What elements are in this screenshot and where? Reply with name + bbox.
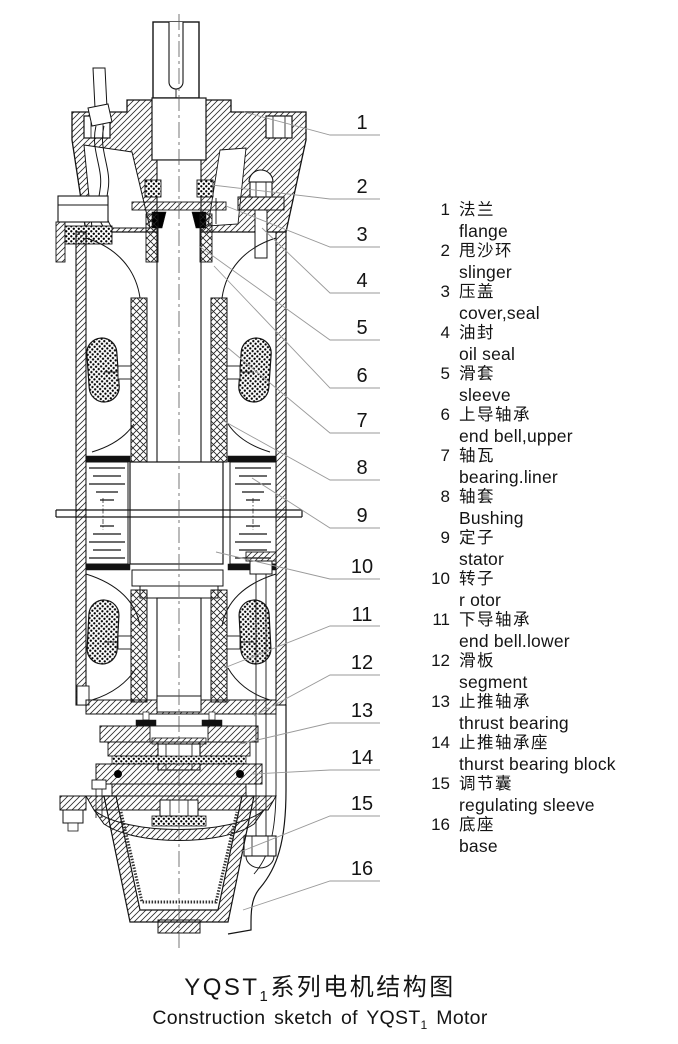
legend-zh: 轴瓦 [459, 446, 495, 467]
legend-en: bearing.liner [429, 467, 677, 488]
legend-num: 14 [429, 733, 450, 754]
legend-zh: 上导轴承 [459, 405, 531, 426]
callout-4: 4 [356, 270, 367, 292]
callout-3: 3 [356, 224, 367, 246]
callout-16: 16 [351, 858, 373, 880]
legend-zh: 止推轴承座 [459, 733, 549, 754]
legend-zh: 调节囊 [459, 774, 513, 795]
legend-item-15: 15调节囊 regulating sleeve [429, 774, 677, 815]
parts-legend: 1法兰 flange 2甩沙环 slinger 3压盖 cover,seal 4… [429, 200, 677, 856]
legend-zh: 轴套 [459, 487, 495, 508]
callout-8: 8 [356, 457, 367, 479]
legend-en: end bell.lower [429, 631, 677, 652]
legend-item-11: 11下导轴承 end bell.lower [429, 610, 677, 651]
legend-zh: 甩沙环 [459, 241, 513, 262]
legend-num: 8 [429, 487, 450, 508]
legend-item-2: 2甩沙环 slinger [429, 241, 677, 282]
callout-5: 5 [356, 317, 367, 339]
legend-item-8: 8轴套 Bushing [429, 487, 677, 528]
callout-7: 7 [356, 410, 367, 432]
callout-14: 14 [351, 747, 373, 769]
legend-item-10: 10转子 r otor [429, 569, 677, 610]
legend-en: thrust bearing [429, 713, 677, 734]
legend-en: slinger [429, 262, 677, 283]
caption-zh: YQST1系列电机结构图 [40, 967, 600, 1002]
callout-11: 11 [352, 604, 373, 626]
legend-en: regulating sleeve [429, 795, 677, 816]
legend-item-5: 5滑套 sleeve [429, 364, 677, 405]
legend-en: segment [429, 672, 677, 693]
callout-2: 2 [356, 176, 367, 198]
legend-en: thurst bearing block [429, 754, 677, 775]
callout-numbers: 1 2 3 4 5 6 7 8 9 10 11 12 13 14 15 16 [351, 112, 373, 880]
legend-en: sleeve [429, 385, 677, 406]
legend-en: stator [429, 549, 677, 570]
callout-6: 6 [356, 365, 367, 387]
legend-item-9: 9定子 stator [429, 528, 677, 569]
legend-num: 3 [429, 282, 450, 303]
legend-num: 2 [429, 241, 450, 262]
caption-en: Construction sketch of YQST1 Motor [40, 1007, 600, 1030]
legend-num: 6 [429, 405, 450, 426]
legend-item-3: 3压盖 cover,seal [429, 282, 677, 323]
legend-item-1: 1法兰 flange [429, 200, 677, 241]
legend-en: end bell,upper [429, 426, 677, 447]
legend-zh: 法兰 [459, 200, 495, 221]
legend-en: oil seal [429, 344, 677, 365]
legend-zh: 止推轴承 [459, 692, 531, 713]
legend-zh: 滑套 [459, 364, 495, 385]
legend-en: flange [429, 221, 677, 242]
legend-num: 12 [429, 651, 450, 672]
legend-item-13: 13止推轴承 thrust bearing [429, 692, 677, 733]
figure-caption: YQST1系列电机结构图 Construction sketch of YQST… [40, 967, 600, 1030]
legend-num: 16 [429, 815, 450, 836]
legend-zh: 底座 [459, 815, 495, 836]
legend-zh: 滑板 [459, 651, 495, 672]
legend-item-4: 4油封 oil seal [429, 323, 677, 364]
legend-item-14: 14止推轴承座 thurst bearing block [429, 733, 677, 774]
legend-num: 5 [429, 364, 450, 385]
legend-num: 9 [429, 528, 450, 549]
callout-1: 1 [356, 112, 367, 134]
legend-num: 7 [429, 446, 450, 467]
legend-num: 1 [429, 200, 450, 221]
legend-en: cover,seal [429, 303, 677, 324]
legend-zh: 下导轴承 [459, 610, 531, 631]
callout-9: 9 [356, 505, 367, 527]
end-bell-lower [77, 570, 276, 706]
legend-item-6: 6上导轴承 end bell,upper [429, 405, 677, 446]
callout-12: 12 [351, 652, 373, 674]
legend-item-16: 16底座 base [429, 815, 677, 856]
figure-page: 1 2 3 4 5 6 7 8 9 10 11 12 13 14 15 16 1… [0, 0, 678, 1044]
legend-num: 13 [429, 692, 450, 713]
legend-num: 4 [429, 323, 450, 344]
callout-15: 15 [351, 793, 373, 815]
legend-num: 10 [429, 569, 450, 590]
legend-num: 11 [429, 610, 450, 631]
legend-zh: 油封 [459, 323, 495, 344]
legend-en: r otor [429, 590, 677, 611]
callout-10: 10 [351, 556, 373, 578]
legend-zh: 定子 [459, 528, 495, 549]
legend-num: 15 [429, 774, 450, 795]
legend-zh: 转子 [459, 569, 495, 590]
legend-en: base [429, 836, 677, 857]
base [60, 796, 276, 933]
legend-item-7: 7轴瓦 bearing.liner [429, 446, 677, 487]
legend-en: Bushing [429, 508, 677, 529]
legend-item-12: 12滑板 segment [429, 651, 677, 692]
legend-zh: 压盖 [459, 282, 495, 303]
callout-13: 13 [351, 700, 373, 722]
